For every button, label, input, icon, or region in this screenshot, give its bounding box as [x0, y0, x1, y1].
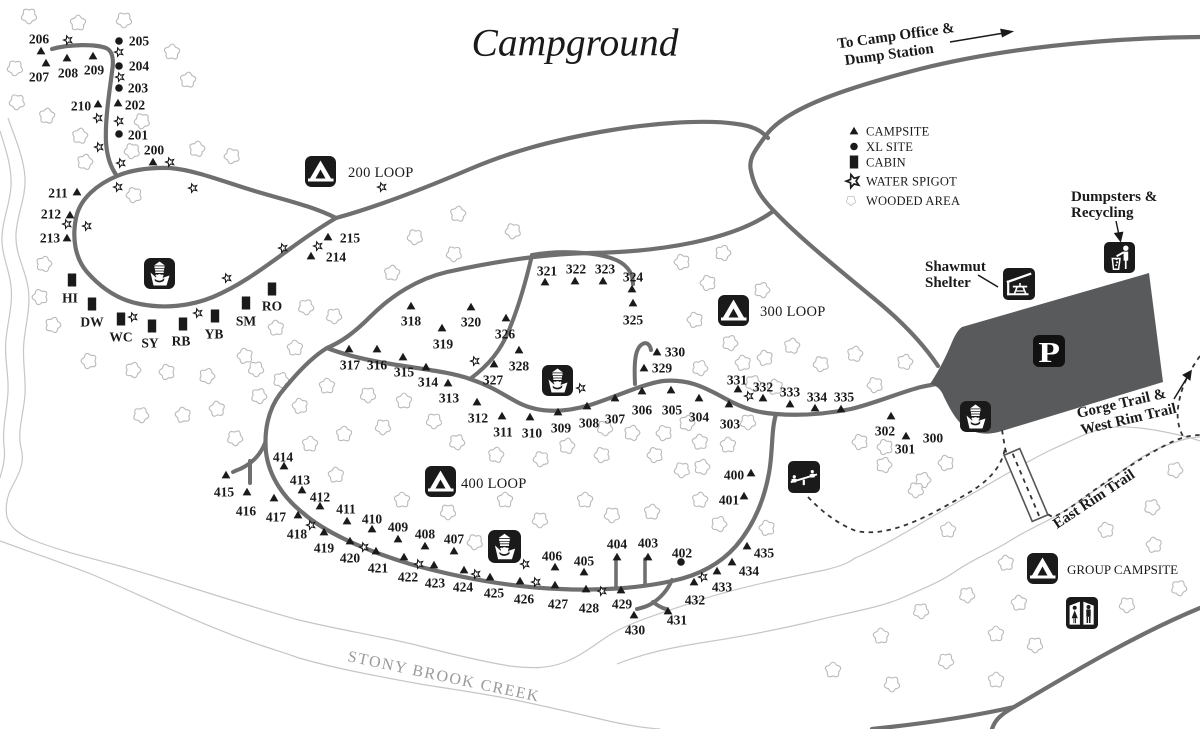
svg-text:403: 403 — [638, 536, 659, 551]
svg-text:324: 324 — [623, 270, 644, 285]
svg-text:Shelter: Shelter — [925, 275, 971, 291]
svg-text:208: 208 — [58, 66, 79, 81]
svg-text:309: 309 — [551, 421, 572, 436]
svg-text:GROUP CAMPSITE: GROUP CAMPSITE — [1067, 562, 1178, 577]
svg-text:322: 322 — [566, 262, 587, 277]
svg-text:326: 326 — [495, 327, 516, 342]
svg-text:320: 320 — [461, 315, 482, 330]
svg-text:408: 408 — [415, 527, 436, 542]
svg-text:430: 430 — [625, 623, 646, 638]
svg-text:418: 418 — [287, 527, 308, 542]
svg-text:421: 421 — [368, 561, 389, 576]
svg-text:416: 416 — [236, 504, 257, 519]
svg-text:328: 328 — [509, 359, 530, 374]
svg-text:WOODED AREA: WOODED AREA — [866, 194, 960, 208]
svg-text:329: 329 — [652, 361, 673, 376]
svg-text:405: 405 — [574, 554, 595, 569]
svg-text:409: 409 — [388, 520, 409, 535]
svg-text:423: 423 — [425, 576, 446, 591]
svg-text:420: 420 — [340, 551, 361, 566]
svg-text:306: 306 — [632, 403, 653, 418]
svg-text:HI: HI — [62, 291, 78, 306]
svg-text:300 LOOP: 300 LOOP — [760, 304, 826, 320]
svg-text:323: 323 — [595, 262, 616, 277]
svg-text:201: 201 — [128, 128, 149, 143]
svg-text:Dumpsters &: Dumpsters & — [1071, 189, 1157, 205]
svg-text:CABIN: CABIN — [866, 156, 906, 170]
svg-text:314: 314 — [418, 375, 439, 390]
svg-text:SY: SY — [141, 336, 159, 351]
svg-text:425: 425 — [484, 586, 505, 601]
svg-text:212: 212 — [41, 207, 62, 222]
svg-text:312: 312 — [468, 411, 489, 426]
svg-text:410: 410 — [362, 512, 383, 527]
svg-text:308: 308 — [579, 416, 600, 431]
svg-text:402: 402 — [672, 546, 693, 561]
svg-text:202: 202 — [125, 98, 146, 113]
svg-text:CAMPSITE: CAMPSITE — [866, 125, 930, 139]
svg-text:428: 428 — [579, 601, 600, 616]
svg-text:412: 412 — [310, 490, 331, 505]
svg-text:206: 206 — [29, 32, 50, 47]
svg-text:210: 210 — [71, 99, 92, 114]
svg-text:Shawmut: Shawmut — [925, 259, 986, 275]
svg-text:419: 419 — [314, 541, 335, 556]
svg-text:WATER SPIGOT: WATER SPIGOT — [866, 175, 957, 189]
svg-text:RB: RB — [172, 334, 191, 349]
svg-text:200: 200 — [144, 143, 165, 158]
svg-text:431: 431 — [667, 613, 688, 628]
svg-text:215: 215 — [340, 231, 361, 246]
svg-text:305: 305 — [662, 403, 683, 418]
svg-text:335: 335 — [834, 390, 855, 405]
svg-text:207: 207 — [29, 70, 50, 85]
svg-text:413: 413 — [290, 473, 311, 488]
svg-text:321: 321 — [537, 264, 558, 279]
svg-text:415: 415 — [214, 485, 235, 500]
svg-text:327: 327 — [483, 373, 504, 388]
svg-text:401: 401 — [719, 493, 740, 508]
svg-text:304: 304 — [689, 410, 710, 425]
svg-text:316: 316 — [367, 358, 388, 373]
svg-text:404: 404 — [607, 537, 628, 552]
svg-text:435: 435 — [754, 546, 775, 561]
svg-text:422: 422 — [398, 570, 419, 585]
svg-text:429: 429 — [612, 597, 633, 612]
svg-text:334: 334 — [807, 390, 828, 405]
svg-text:311: 311 — [493, 425, 513, 440]
svg-text:432: 432 — [685, 593, 706, 608]
svg-text:211: 211 — [48, 186, 68, 201]
svg-text:205: 205 — [129, 34, 150, 49]
svg-text:406: 406 — [542, 549, 563, 564]
svg-text:414: 414 — [273, 450, 294, 465]
svg-text:200 LOOP: 200 LOOP — [348, 165, 414, 181]
svg-text:315: 315 — [394, 365, 415, 380]
svg-text:400 LOOP: 400 LOOP — [461, 476, 527, 492]
svg-text:332: 332 — [753, 380, 774, 395]
svg-text:YB: YB — [205, 327, 224, 342]
svg-text:333: 333 — [780, 385, 801, 400]
svg-text:302: 302 — [875, 424, 896, 439]
svg-text:DW: DW — [80, 315, 104, 330]
svg-text:426: 426 — [514, 592, 535, 607]
svg-text:310: 310 — [522, 426, 543, 441]
svg-text:313: 313 — [439, 391, 460, 406]
svg-text:Recycling: Recycling — [1071, 205, 1134, 221]
svg-text:325: 325 — [623, 313, 644, 328]
svg-text:P: P — [1038, 336, 1060, 368]
svg-text:427: 427 — [548, 597, 569, 612]
svg-text:214: 214 — [326, 250, 347, 265]
svg-text:Campground: Campground — [471, 21, 678, 65]
svg-text:204: 204 — [129, 59, 150, 74]
svg-text:318: 318 — [401, 314, 422, 329]
svg-text:319: 319 — [433, 337, 454, 352]
svg-text:301: 301 — [895, 442, 916, 457]
svg-text:213: 213 — [40, 231, 61, 246]
svg-text:RO: RO — [262, 299, 282, 314]
svg-text:300: 300 — [923, 431, 944, 446]
svg-text:203: 203 — [128, 81, 149, 96]
svg-text:307: 307 — [605, 412, 626, 427]
svg-text:XL SITE: XL SITE — [866, 140, 913, 154]
svg-text:317: 317 — [340, 358, 361, 373]
svg-text:407: 407 — [444, 532, 465, 547]
svg-text:433: 433 — [712, 580, 733, 595]
svg-text:434: 434 — [739, 564, 760, 579]
svg-text:209: 209 — [84, 63, 105, 78]
svg-text:400: 400 — [724, 468, 745, 483]
svg-text:303: 303 — [720, 417, 741, 432]
svg-text:411: 411 — [336, 502, 356, 517]
svg-text:SM: SM — [236, 314, 257, 329]
svg-text:424: 424 — [453, 580, 474, 595]
svg-text:WC: WC — [109, 330, 132, 345]
svg-text:331: 331 — [727, 373, 748, 388]
svg-text:417: 417 — [266, 510, 287, 525]
svg-text:330: 330 — [665, 345, 686, 360]
